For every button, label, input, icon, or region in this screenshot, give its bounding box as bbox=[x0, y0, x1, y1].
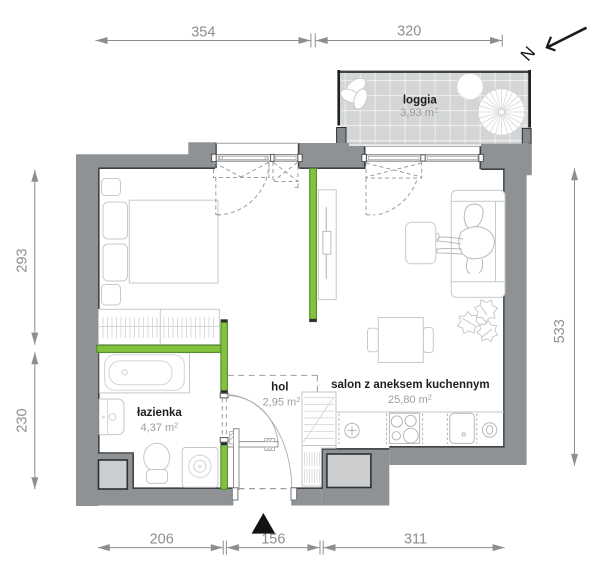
svg-text:3,93 m2: 3,93 m2 bbox=[400, 106, 438, 120]
svg-text:łazienka: łazienka bbox=[137, 407, 182, 419]
svg-text:293: 293 bbox=[15, 248, 31, 272]
svg-text:4,37 m2: 4,37 m2 bbox=[140, 421, 178, 435]
svg-text:156: 156 bbox=[261, 532, 285, 548]
svg-text:salon z aneksem kuchennym: salon z aneksem kuchennym bbox=[331, 379, 490, 391]
svg-text:206: 206 bbox=[150, 532, 174, 548]
svg-text:311: 311 bbox=[404, 532, 427, 548]
svg-text:2,95 m2: 2,95 m2 bbox=[263, 395, 301, 409]
svg-text:354: 354 bbox=[191, 25, 215, 41]
svg-text:320: 320 bbox=[397, 24, 421, 40]
svg-text:25,80 m2: 25,80 m2 bbox=[388, 393, 432, 407]
svg-text:loggia: loggia bbox=[403, 95, 437, 107]
svg-text:533: 533 bbox=[552, 319, 568, 343]
svg-text:230: 230 bbox=[15, 408, 31, 432]
svg-text:hol: hol bbox=[271, 382, 288, 394]
